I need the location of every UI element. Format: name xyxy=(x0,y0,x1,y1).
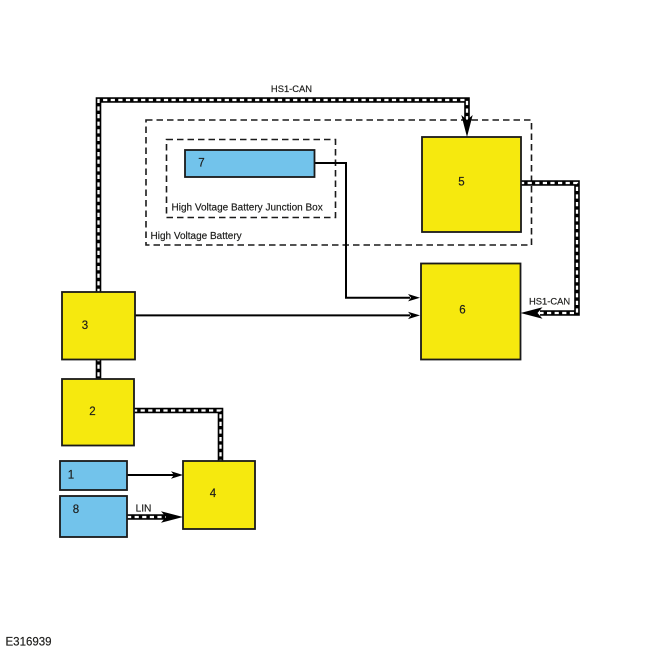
svg-text:8: 8 xyxy=(73,504,79,516)
svg-text:4: 4 xyxy=(210,488,217,500)
svg-text:LIN: LIN xyxy=(136,504,152,515)
svg-text:5: 5 xyxy=(458,177,464,189)
svg-text:HS1-CAN: HS1-CAN xyxy=(529,295,570,306)
svg-text:E316939: E316939 xyxy=(6,636,52,648)
svg-text:3: 3 xyxy=(82,320,88,332)
svg-text:1: 1 xyxy=(68,470,74,482)
svg-text:High Voltage Battery: High Voltage Battery xyxy=(151,231,242,242)
svg-text:High Voltage Battery Junction: High Voltage Battery Junction Box xyxy=(172,203,323,214)
svg-text:6: 6 xyxy=(459,305,465,317)
svg-text:2: 2 xyxy=(89,406,95,418)
svg-text:7: 7 xyxy=(198,158,204,170)
svg-text:HS1-CAN: HS1-CAN xyxy=(271,83,312,94)
